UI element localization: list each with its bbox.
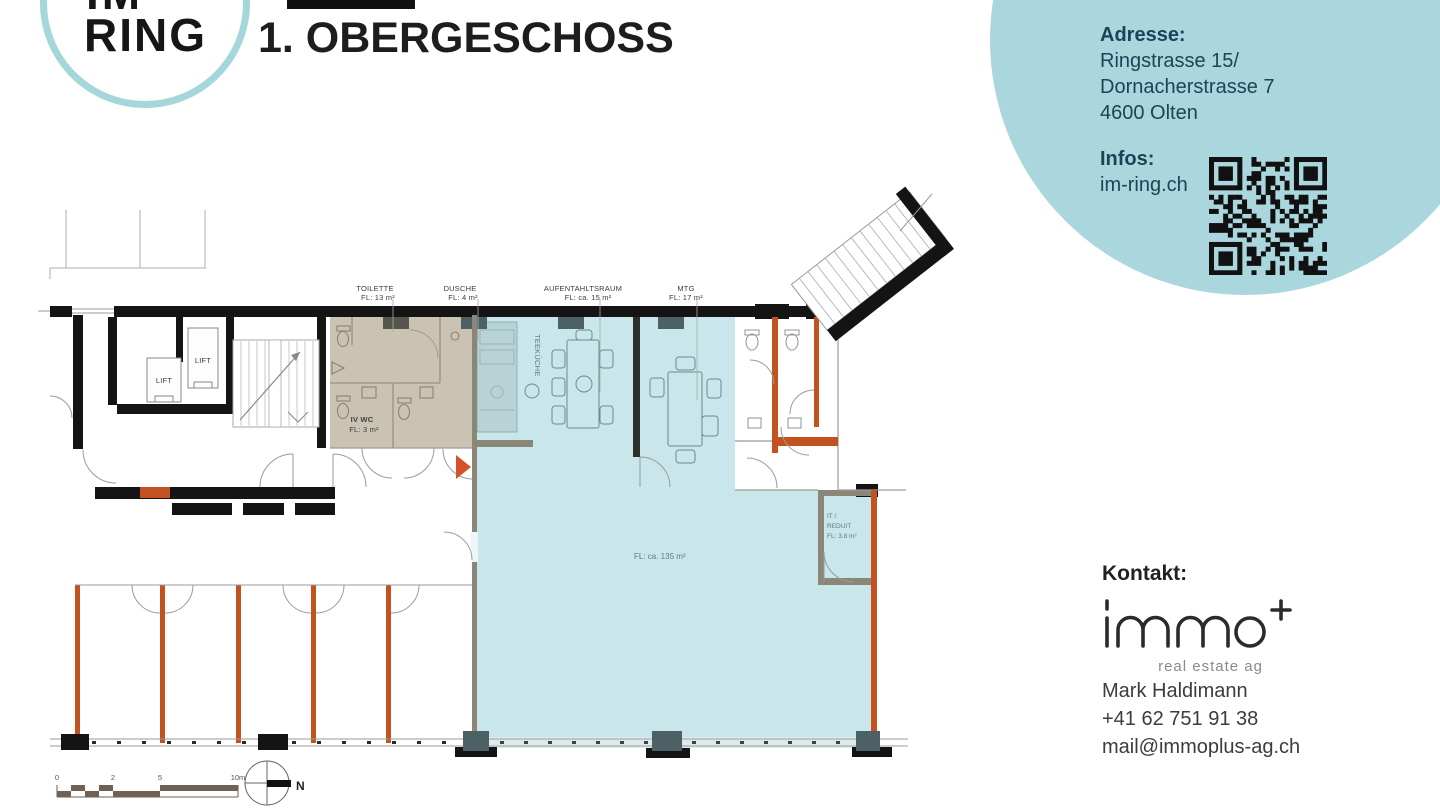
label-toilette: TOILETTE [356,284,393,293]
label-hauptraum-area: FL: ca. 135 m² [634,552,686,561]
scale-tick-5: 5 [158,773,162,782]
label-lift-left: LIFT [156,376,172,385]
label-teekueche: TEEKÜCHE [533,334,542,376]
label-toilette-area: FL: 13 m² [361,293,395,302]
floor-plan: TOILETTE FL: 13 m² DUSCHE FL: 4 m² AUFEN… [0,0,1440,810]
label-dusche-area: FL: 4 m² [448,293,478,302]
entrance-arrow [456,455,471,479]
north-arrow: N [245,761,305,805]
scale-bar: 0 2 5 10m [55,773,245,797]
zone-kitchen-strip [477,322,517,432]
label-lift-right: LIFT [195,356,211,365]
staircase [233,340,319,427]
scale-tick-10: 10m [231,773,246,782]
label-aufenthaltsraum-area: FL: ca. 15 m² [565,293,612,302]
scale-tick-2: 2 [111,773,115,782]
label-iv-wc-area: FL: 3 m² [349,425,379,434]
scale-tick-0: 0 [55,773,59,782]
label-it-2: REDUIT [827,523,851,530]
label-iv-wc: IV WC [351,415,374,424]
label-mtg-area: FL: 17 m² [669,293,703,302]
label-aufenthaltsraum: AUFENTAHLTSRAUM [544,284,622,293]
zone-fills [330,315,875,748]
label-mtg: MTG [677,284,694,293]
north-label: N [296,779,305,793]
label-dusche: DUSCHE [444,284,477,293]
label-it-area: FL: 3.8 m² [827,533,857,540]
adjacent-building-outline [50,210,206,279]
label-it-1: IT / [827,513,836,520]
